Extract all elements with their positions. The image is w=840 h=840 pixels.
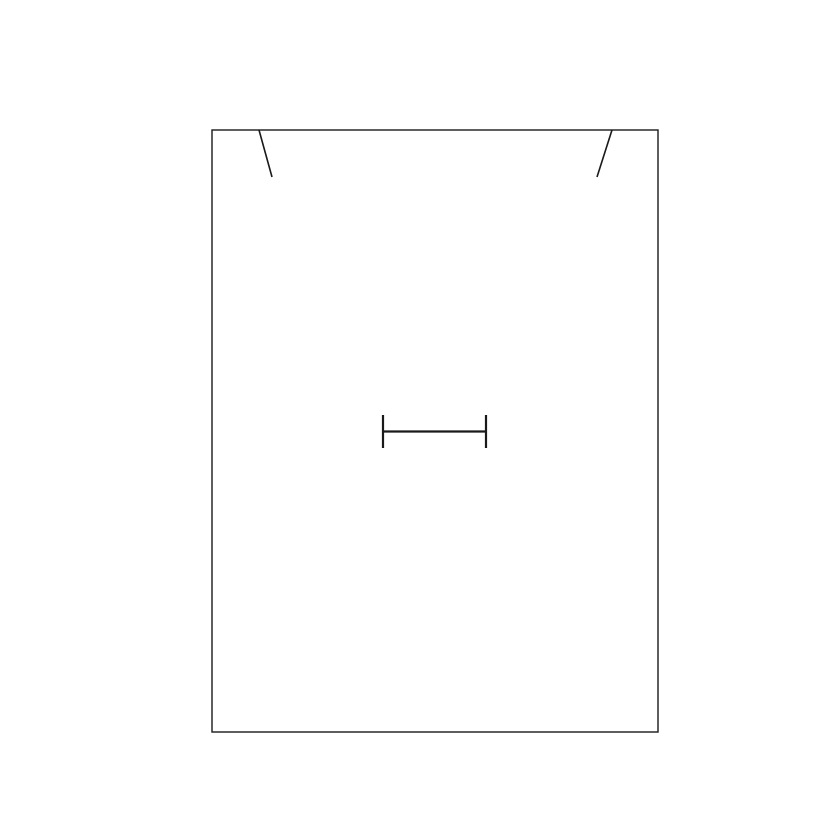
page-canvas xyxy=(0,0,840,840)
top-right-notch-line xyxy=(597,130,612,177)
pattern-diagram-svg xyxy=(0,0,840,840)
top-left-notch-line xyxy=(259,130,272,177)
